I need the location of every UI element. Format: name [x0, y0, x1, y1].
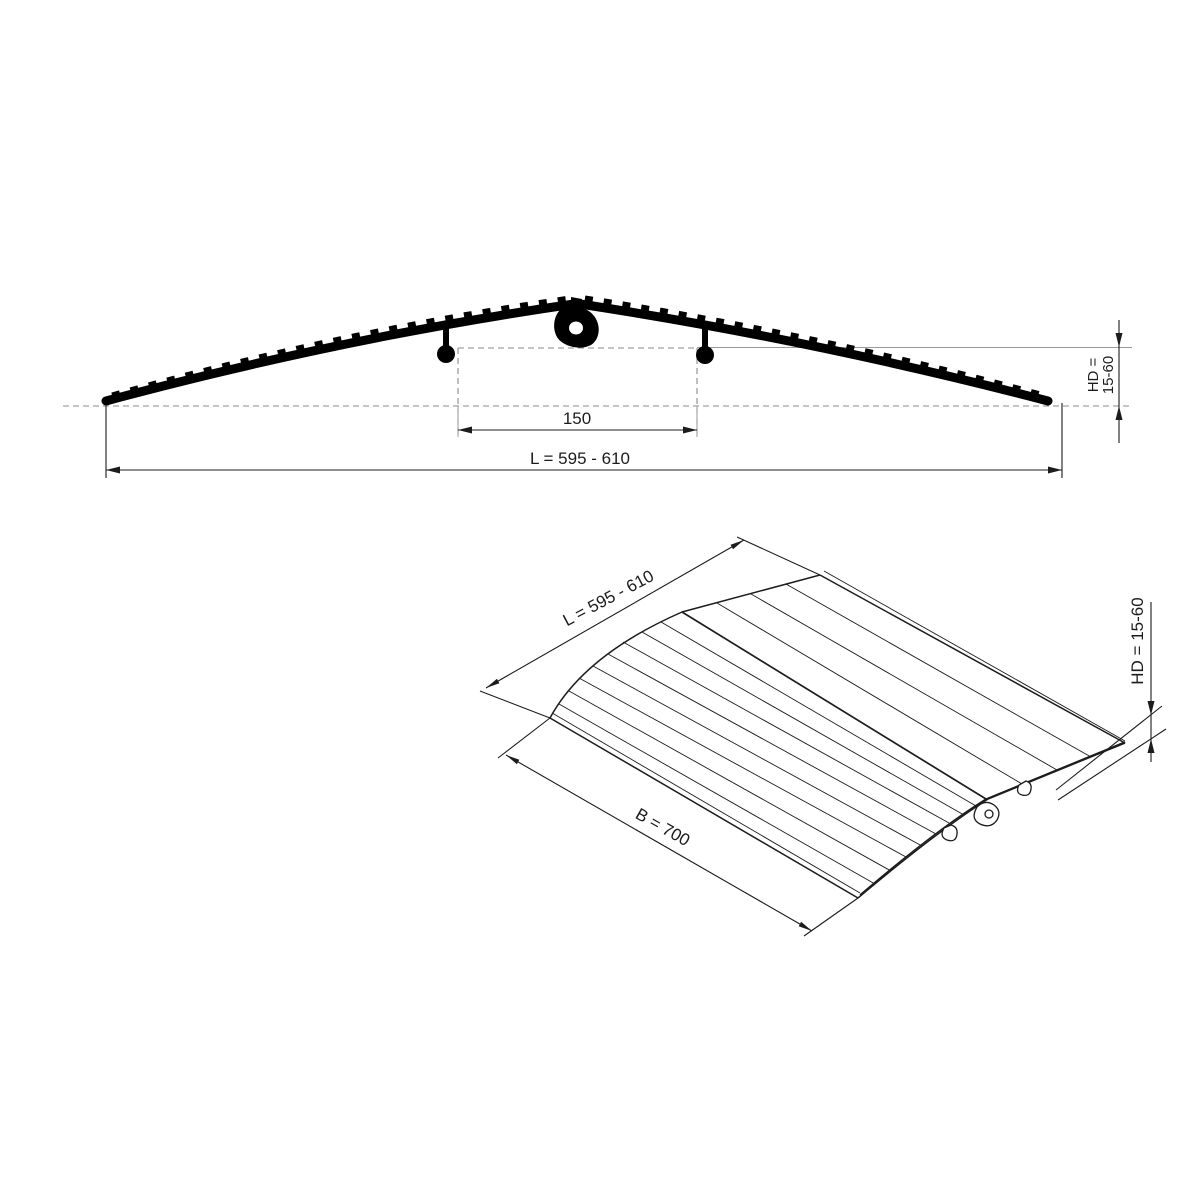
dim-height-label-line2: 15-60: [1100, 356, 1117, 394]
dim-150-label: 150: [563, 409, 591, 428]
arrow-end-icon: [506, 755, 519, 764]
support-leg-left: [437, 327, 455, 363]
dim-height-label: HD = 15-60: [1128, 597, 1147, 684]
isometric-view: L = 595 - 610 B = 700 HD = 15-60: [480, 537, 1166, 936]
ramp-plate-outline: [550, 571, 1125, 898]
arrow-right-icon: [1048, 467, 1062, 474]
arrow-end-icon: [486, 679, 499, 688]
arrow-end-icon: [799, 922, 812, 931]
dimension-height-iso: HD = 15-60: [1056, 597, 1166, 800]
threshold-ramp-drawing: 150 L = 595 - 610 HD = 15-60: [0, 0, 1200, 1200]
arrow-up-icon: [1116, 406, 1123, 420]
profile-section-hooks: [942, 781, 1031, 841]
dimension-150: 150: [458, 406, 697, 437]
dimension-height-side: HD = 15-60: [1085, 320, 1123, 443]
drawing-canvas: 150 L = 595 - 610 HD = 15-60: [0, 0, 1200, 1200]
arrow-left-icon: [106, 467, 120, 474]
section-leg-hook-left: [942, 825, 957, 841]
ramp-profile-silhouette: [106, 297, 1048, 401]
arrow-end-icon: [731, 540, 744, 549]
arrow-down-icon: [1116, 333, 1123, 347]
section-leg-hook-right: [1018, 781, 1032, 795]
side-profile-view: 150 L = 595 - 610 HD = 15-60: [63, 297, 1133, 478]
section-clip-hole: [985, 810, 993, 818]
dimension-width-iso: B = 700: [498, 718, 858, 936]
arrow-right-icon: [683, 427, 697, 434]
dim-length-label: L = 595 - 610: [530, 449, 630, 468]
dim-width-label: B = 700: [632, 804, 693, 850]
surface-ribs-far-slope: [717, 584, 1091, 784]
arrow-left-icon: [458, 427, 472, 434]
ridge-bend-line: [682, 612, 986, 799]
